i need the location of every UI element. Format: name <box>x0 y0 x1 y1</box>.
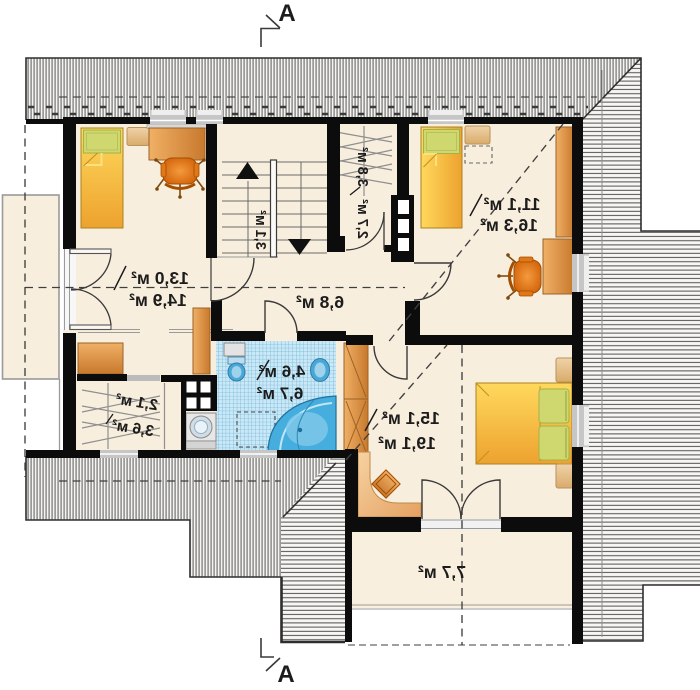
svg-text:15,1 м²: 15,1 м² <box>382 408 440 428</box>
svg-text:7,7 м²: 7,7 м² <box>418 562 466 582</box>
svg-text:2,7 м²: 2,7 м² <box>354 199 370 239</box>
svg-text:A: A <box>278 0 295 27</box>
svg-text:16,3 м²: 16,3 м² <box>480 215 538 235</box>
svg-text:3,8 м²: 3,8 м² <box>354 147 370 187</box>
svg-text:13,0 м²: 13,0 м² <box>131 268 189 288</box>
svg-text:A: A <box>277 661 294 688</box>
svg-text:14,9 м²: 14,9 м² <box>129 290 187 310</box>
svg-text:3,1 м²: 3,1 м² <box>252 210 268 250</box>
svg-text:6,7 м²: 6,7 м² <box>256 384 303 403</box>
svg-text:6,8 м²: 6,8 м² <box>296 292 344 312</box>
svg-text:11,1 м²: 11,1 м² <box>483 194 540 214</box>
svg-text:19,1 м²: 19,1 м² <box>378 433 436 453</box>
